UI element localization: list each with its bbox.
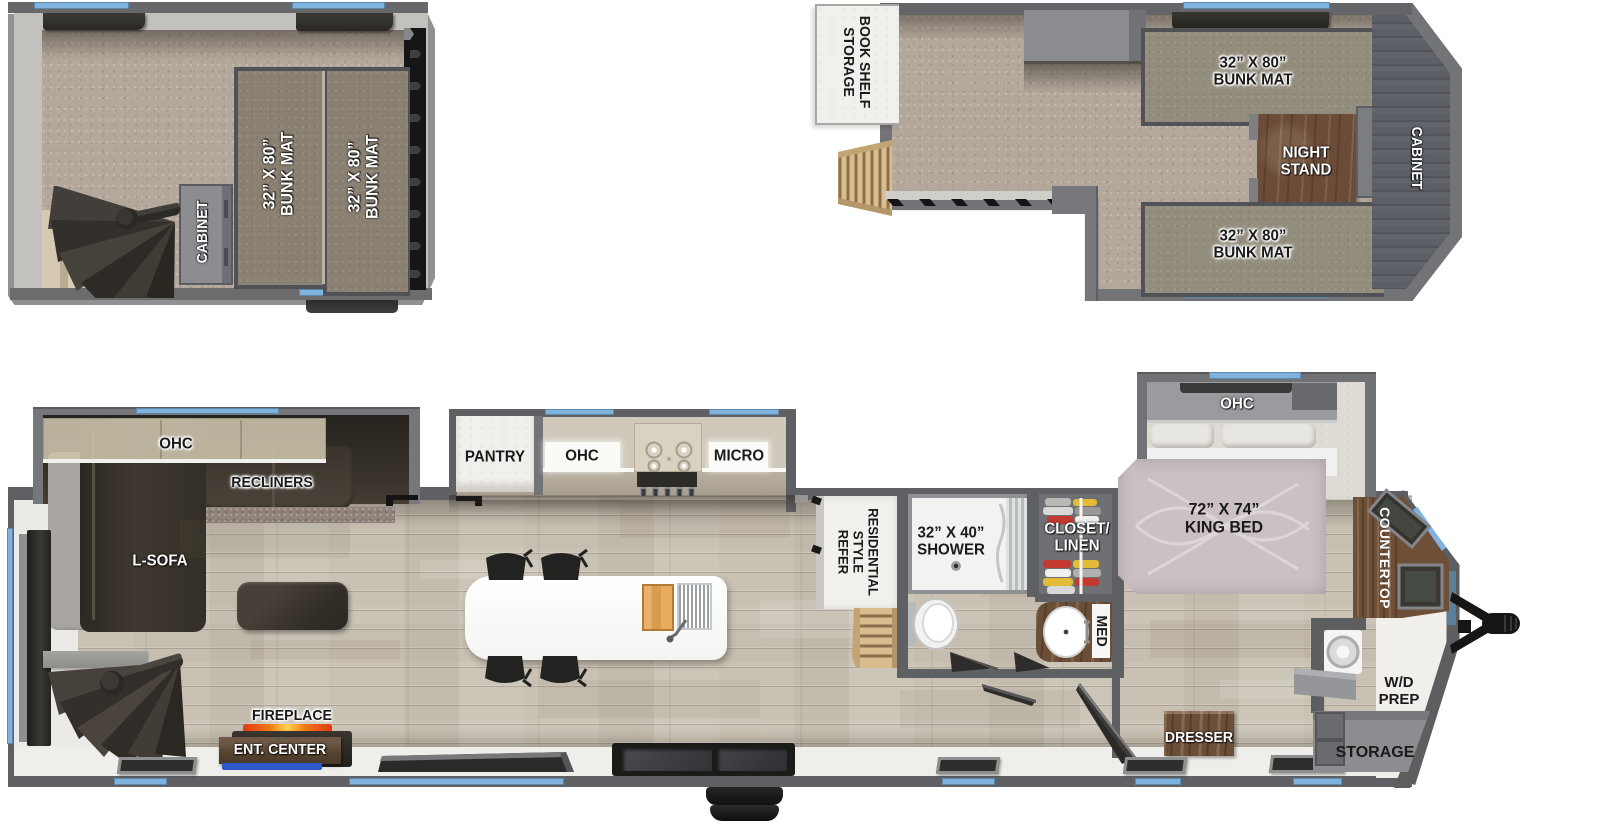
svg-text:COUNTERTOP: COUNTERTOP [1377, 507, 1393, 609]
svg-text:W/D: W/D [1384, 674, 1413, 691]
svg-text:PREP: PREP [1379, 691, 1420, 708]
svg-text:STORAGE: STORAGE [1336, 744, 1415, 761]
